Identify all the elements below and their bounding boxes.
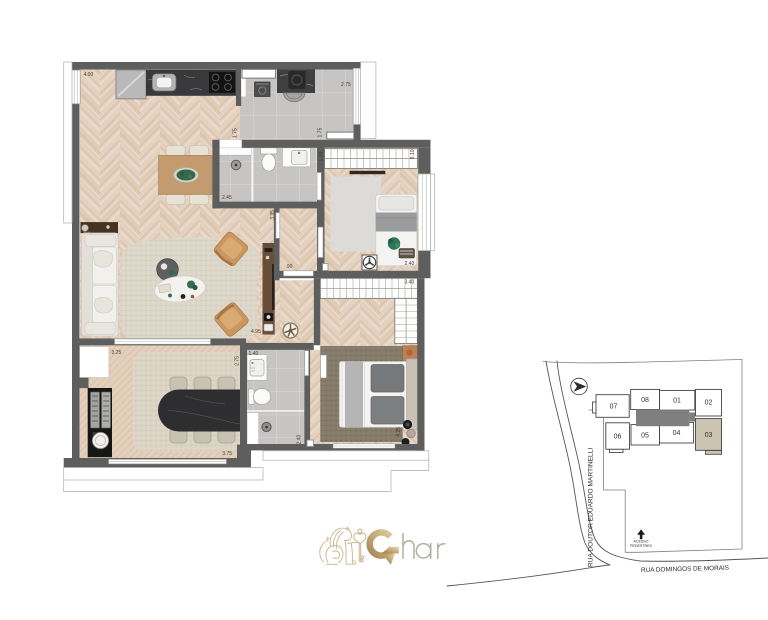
svg-text:08: 08 <box>641 397 649 404</box>
svg-text:3.25: 3.25 <box>112 350 122 356</box>
svg-text:2.40: 2.40 <box>405 261 415 267</box>
svg-text:01: 01 <box>673 398 681 405</box>
svg-text:03: 03 <box>705 432 713 439</box>
svg-text:2.75: 2.75 <box>341 82 351 88</box>
svg-text:06: 06 <box>614 434 622 441</box>
svg-text:1.40: 1.40 <box>249 351 259 357</box>
svg-text:1.75: 1.75 <box>233 128 239 138</box>
svg-text:8.10: 8.10 <box>410 149 416 159</box>
svg-text:PEDESTRES: PEDESTRES <box>630 544 652 548</box>
svg-text:02: 02 <box>705 400 713 407</box>
svg-text:.90: .90 <box>286 264 293 270</box>
svg-text:3.35: 3.35 <box>270 210 276 220</box>
svg-text:1.75: 1.75 <box>318 128 324 138</box>
svg-text:3.40: 3.40 <box>405 280 415 286</box>
svg-text:1.35: 1.35 <box>319 152 325 162</box>
svg-text:4.95: 4.95 <box>251 329 261 335</box>
svg-text:05: 05 <box>641 433 649 440</box>
svg-text:2.40: 2.40 <box>297 435 303 445</box>
svg-text:07: 07 <box>610 404 618 411</box>
svg-text:4.00: 4.00 <box>84 72 94 78</box>
svg-text:ACESSO: ACESSO <box>634 540 649 544</box>
svg-text:04: 04 <box>673 430 681 437</box>
svg-text:RUA DOUTOR EDUARDO MARTINELLI: RUA DOUTOR EDUARDO MARTINELLI <box>588 448 595 567</box>
svg-text:2.45: 2.45 <box>222 195 232 201</box>
svg-text:3.75: 3.75 <box>222 451 232 457</box>
svg-text:4.25: 4.25 <box>396 427 402 437</box>
svg-text:2.75: 2.75 <box>234 356 240 366</box>
